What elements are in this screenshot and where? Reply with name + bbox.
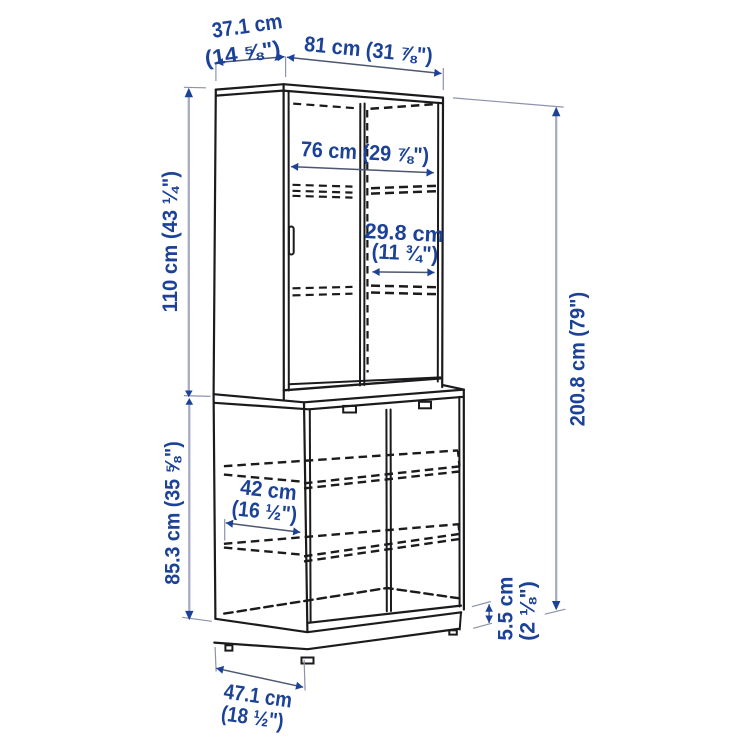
svg-text:(2 ⅛"): (2 ⅛") — [515, 581, 539, 641]
svg-text:(11 ¾"): (11 ¾") — [371, 240, 439, 267]
svg-text:110 cm (43 ¼"): 110 cm (43 ¼") — [159, 171, 183, 312]
svg-text:5.5 cm: 5.5 cm — [494, 577, 518, 641]
svg-text:200.8 cm (79"): 200.8 cm (79") — [566, 292, 590, 426]
svg-text:85.3 cm (35 ⅝"): 85.3 cm (35 ⅝") — [161, 441, 185, 584]
